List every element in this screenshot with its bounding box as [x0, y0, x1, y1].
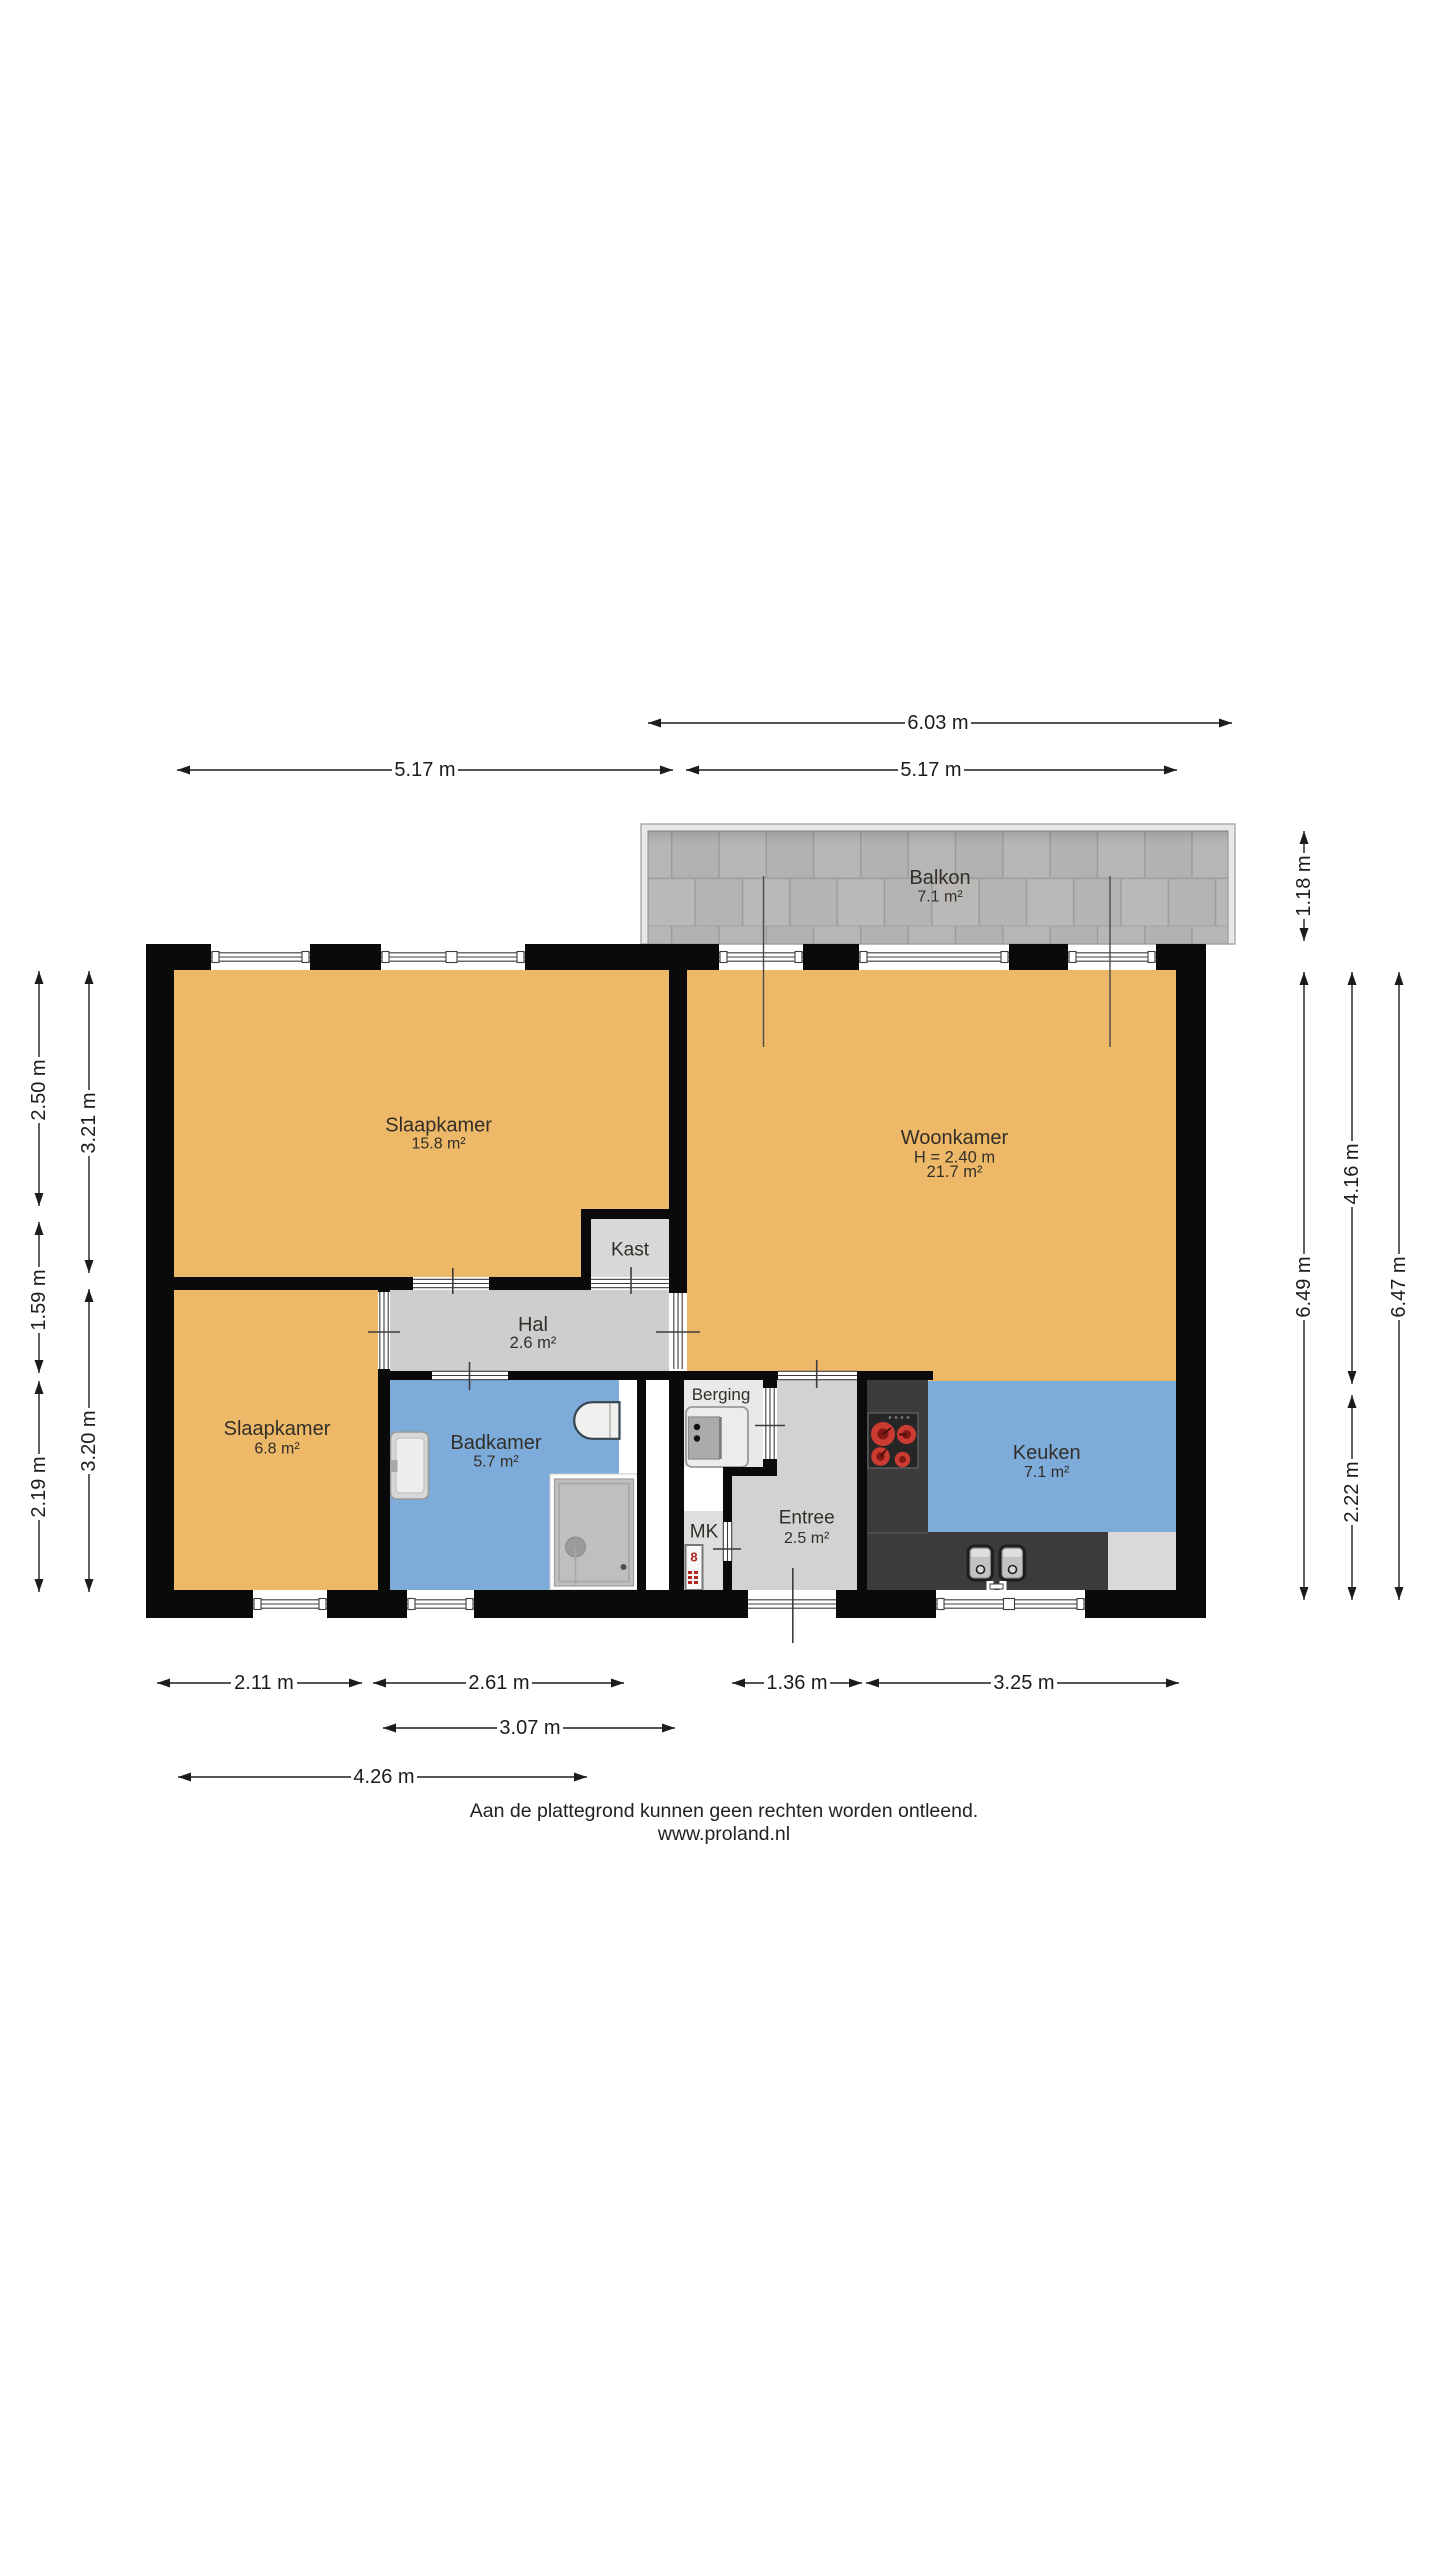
svg-text:Slaapkamer: Slaapkamer [385, 1115, 492, 1137]
svg-text:7.1 m²: 7.1 m² [1024, 1464, 1070, 1481]
svg-text:4.26 m: 4.26 m [353, 1766, 414, 1788]
svg-text:6.03 m: 6.03 m [907, 712, 968, 734]
svg-text:1.18 m: 1.18 m [1293, 855, 1315, 916]
svg-text:2.11 m: 2.11 m [234, 1672, 294, 1694]
svg-text:6.49 m: 6.49 m [1293, 1256, 1315, 1317]
svg-text:8: 8 [690, 1550, 697, 1565]
svg-text:Berging: Berging [692, 1385, 751, 1404]
svg-text:2.50 m: 2.50 m [28, 1059, 50, 1120]
svg-text:3.07 m: 3.07 m [499, 1717, 560, 1739]
svg-text:21.7 m²: 21.7 m² [927, 1163, 983, 1181]
svg-text:Balkon: Balkon [909, 867, 970, 889]
svg-text:4.16 m: 4.16 m [1341, 1143, 1363, 1204]
svg-text:Entree: Entree [779, 1508, 835, 1529]
svg-text:2.22 m: 2.22 m [1341, 1461, 1363, 1522]
svg-text:3.20 m: 3.20 m [78, 1410, 100, 1471]
svg-text:Aan de plattegrond kunnen geen: Aan de plattegrond kunnen geen rechten w… [470, 1800, 978, 1822]
svg-text:7.1 m²: 7.1 m² [917, 889, 963, 906]
svg-text:1.59 m: 1.59 m [28, 1269, 50, 1330]
svg-text:Hal: Hal [518, 1314, 548, 1336]
svg-text:2.6 m²: 2.6 m² [510, 1334, 557, 1352]
svg-text:2.61 m: 2.61 m [468, 1672, 529, 1694]
svg-text:1.36 m: 1.36 m [766, 1672, 827, 1694]
svg-text:2.19 m: 2.19 m [28, 1456, 50, 1517]
svg-text:www.proland.nl: www.proland.nl [657, 1823, 790, 1845]
svg-text:6.8 m²: 6.8 m² [254, 1441, 300, 1458]
svg-text:Slaapkamer: Slaapkamer [224, 1418, 331, 1440]
svg-text:5.17 m: 5.17 m [900, 759, 961, 781]
svg-text:Kast: Kast [611, 1240, 650, 1261]
svg-text:Woonkamer: Woonkamer [901, 1127, 1009, 1149]
svg-text:Badkamer: Badkamer [450, 1432, 541, 1454]
svg-text:6.47 m: 6.47 m [1388, 1256, 1410, 1317]
svg-text:3.25 m: 3.25 m [993, 1672, 1054, 1694]
svg-text:5.7 m²: 5.7 m² [473, 1454, 519, 1471]
svg-text:15.8 m²: 15.8 m² [411, 1136, 466, 1153]
svg-text:5.17 m: 5.17 m [394, 759, 455, 781]
svg-text:MK: MK [690, 1522, 719, 1543]
svg-text:3.21 m: 3.21 m [78, 1092, 100, 1153]
svg-text:2.5 m²: 2.5 m² [784, 1530, 830, 1547]
svg-text:Keuken: Keuken [1013, 1442, 1081, 1464]
